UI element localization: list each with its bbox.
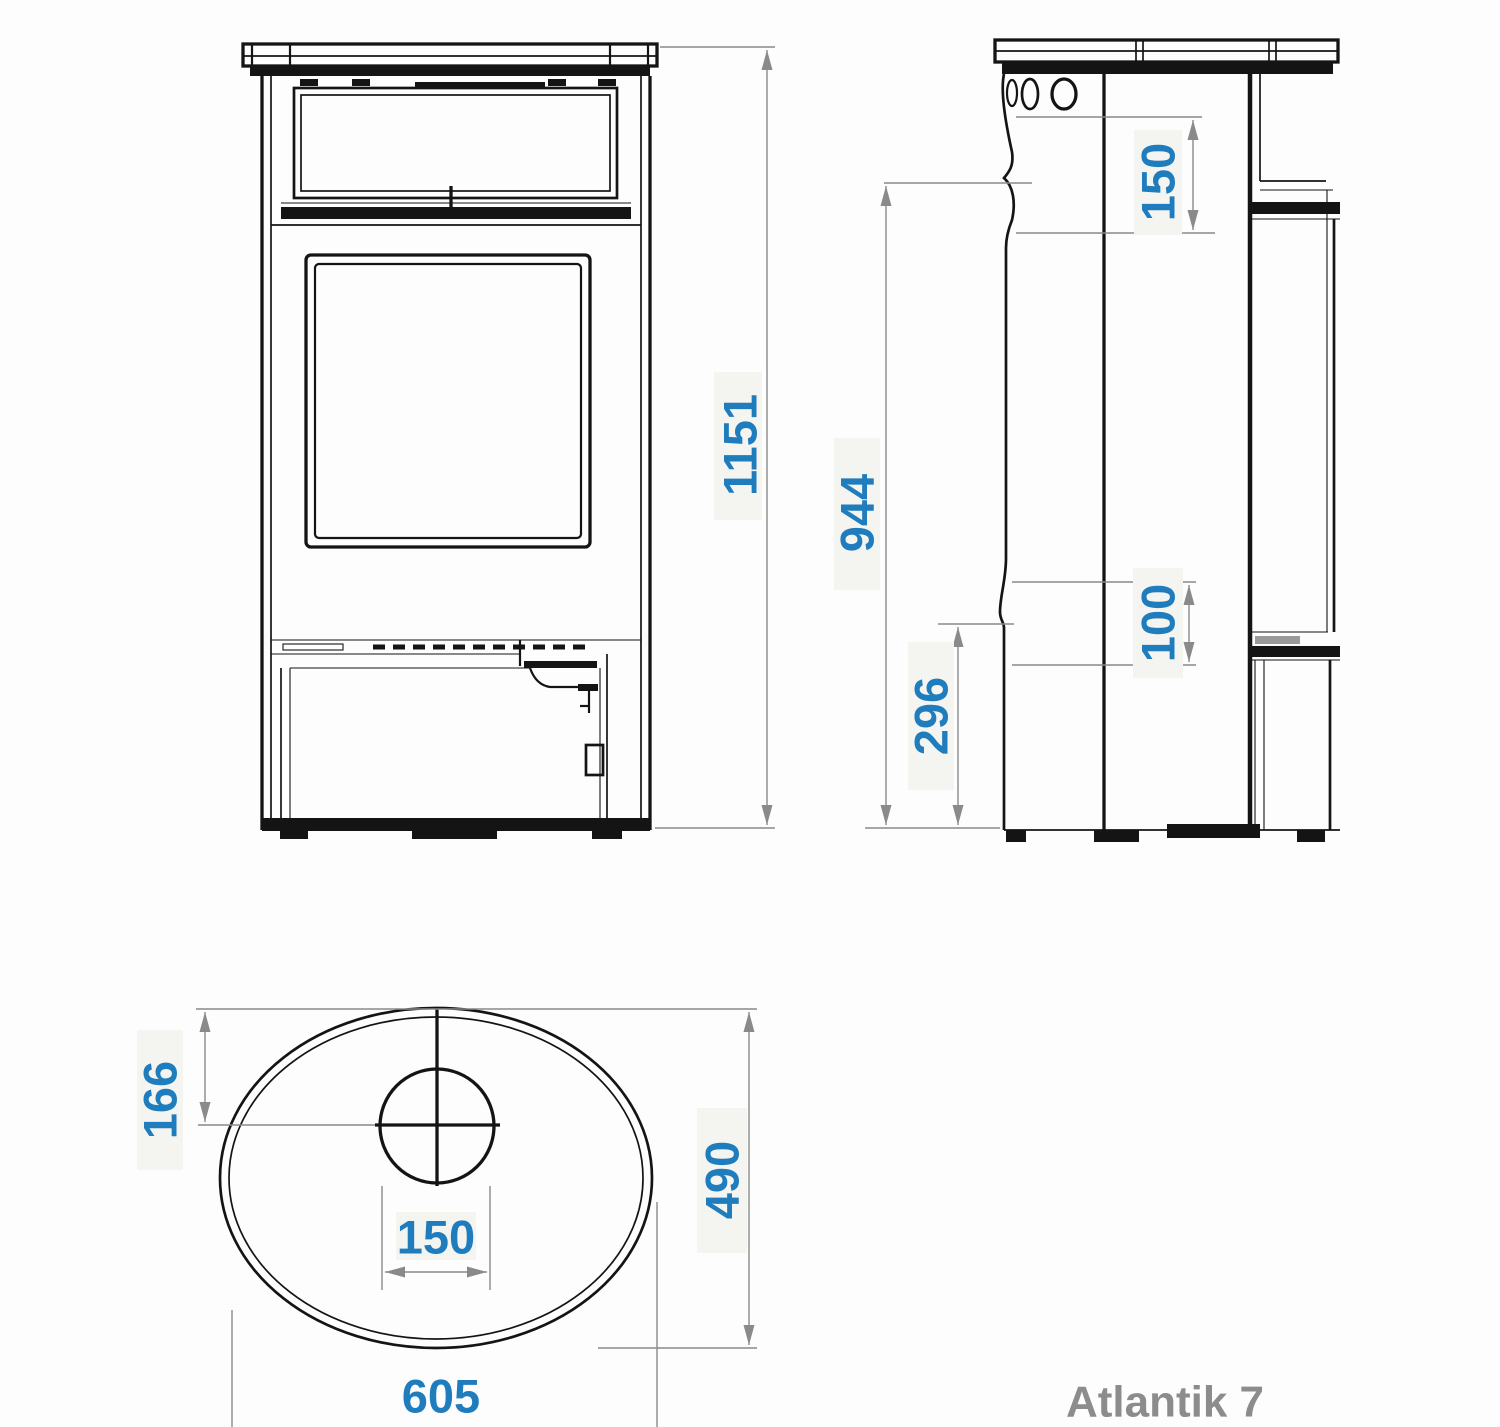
front-warming-compartment — [271, 79, 641, 225]
dim-top-flue-center-offset: 166 — [134, 1012, 206, 1170]
dim-front-total-height: 1151 — [655, 47, 775, 828]
side-rear-outlet-height-label: 944 — [831, 474, 884, 552]
stove-dimension-drawing: 1151 — [0, 0, 1500, 1427]
side-base — [1004, 824, 1340, 842]
technical-drawing-page: 1151 — [0, 0, 1500, 1427]
front-view — [243, 44, 657, 839]
dim-top-flue-diameter: 150 — [382, 1186, 490, 1290]
top-flue-center-offset-label: 166 — [134, 1061, 187, 1139]
top-view — [198, 1008, 652, 1348]
front-base — [262, 818, 650, 839]
front-air-control-band — [271, 640, 641, 713]
front-total-height-label: 1151 — [714, 394, 767, 496]
side-lower-section-height-label: 296 — [905, 677, 958, 755]
product-name-label: Atlantik 7 — [1066, 1378, 1264, 1427]
top-depth-label: 490 — [696, 1141, 749, 1219]
side-upper-rear-shelf — [1250, 181, 1340, 632]
front-fire-window — [306, 255, 590, 547]
top-flue-diameter-label: 150 — [397, 1211, 475, 1264]
front-storage-door — [281, 654, 607, 820]
front-top-plate — [243, 44, 657, 66]
side-outlet-offset-label: 100 — [1132, 584, 1185, 662]
dim-side-lower-section: 296 — [905, 624, 1015, 825]
side-flue-collar-height-label: 150 — [1132, 143, 1185, 221]
dim-side-flue-collar: 150 — [1016, 117, 1215, 235]
side-lower-rear-shelf — [1250, 632, 1340, 830]
top-width-label: 605 — [402, 1370, 480, 1423]
side-front-curve — [1000, 74, 1014, 830]
